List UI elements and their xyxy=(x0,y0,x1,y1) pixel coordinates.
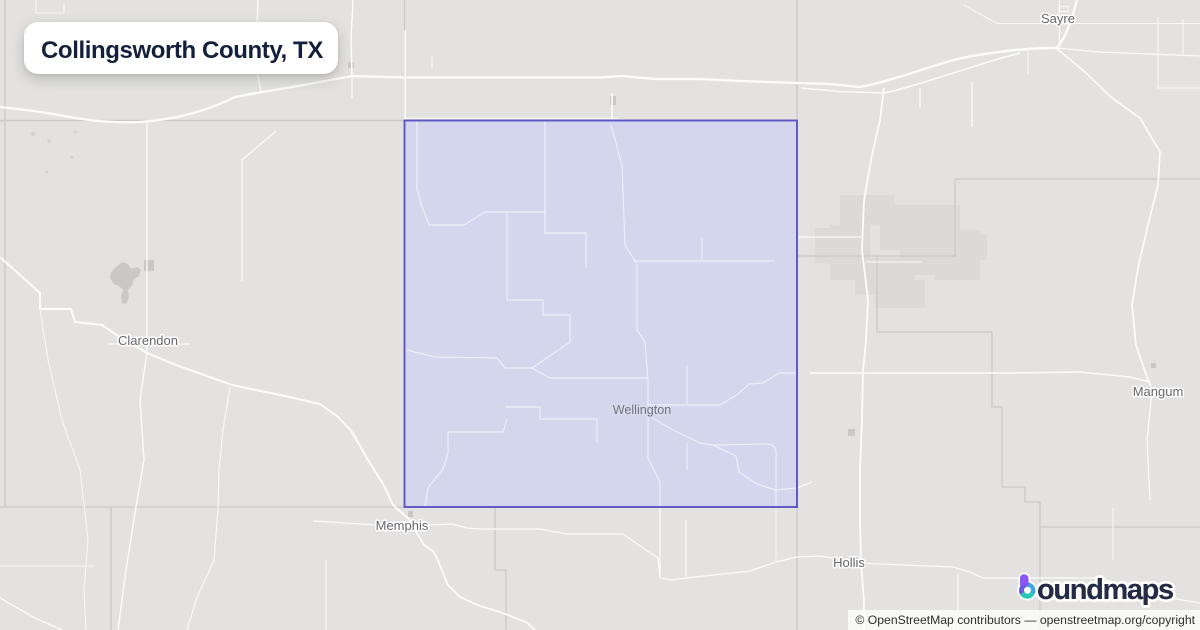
svg-text:Memphis: Memphis xyxy=(376,518,429,533)
svg-text:oundmaps: oundmaps xyxy=(1037,574,1173,606)
svg-text:Clarendon: Clarendon xyxy=(118,333,178,348)
svg-text:Sayre: Sayre xyxy=(1041,11,1075,26)
svg-text:Mangum: Mangum xyxy=(1133,384,1184,399)
svg-text:Wellington: Wellington xyxy=(613,403,672,417)
svg-text:Hollis: Hollis xyxy=(833,555,865,570)
